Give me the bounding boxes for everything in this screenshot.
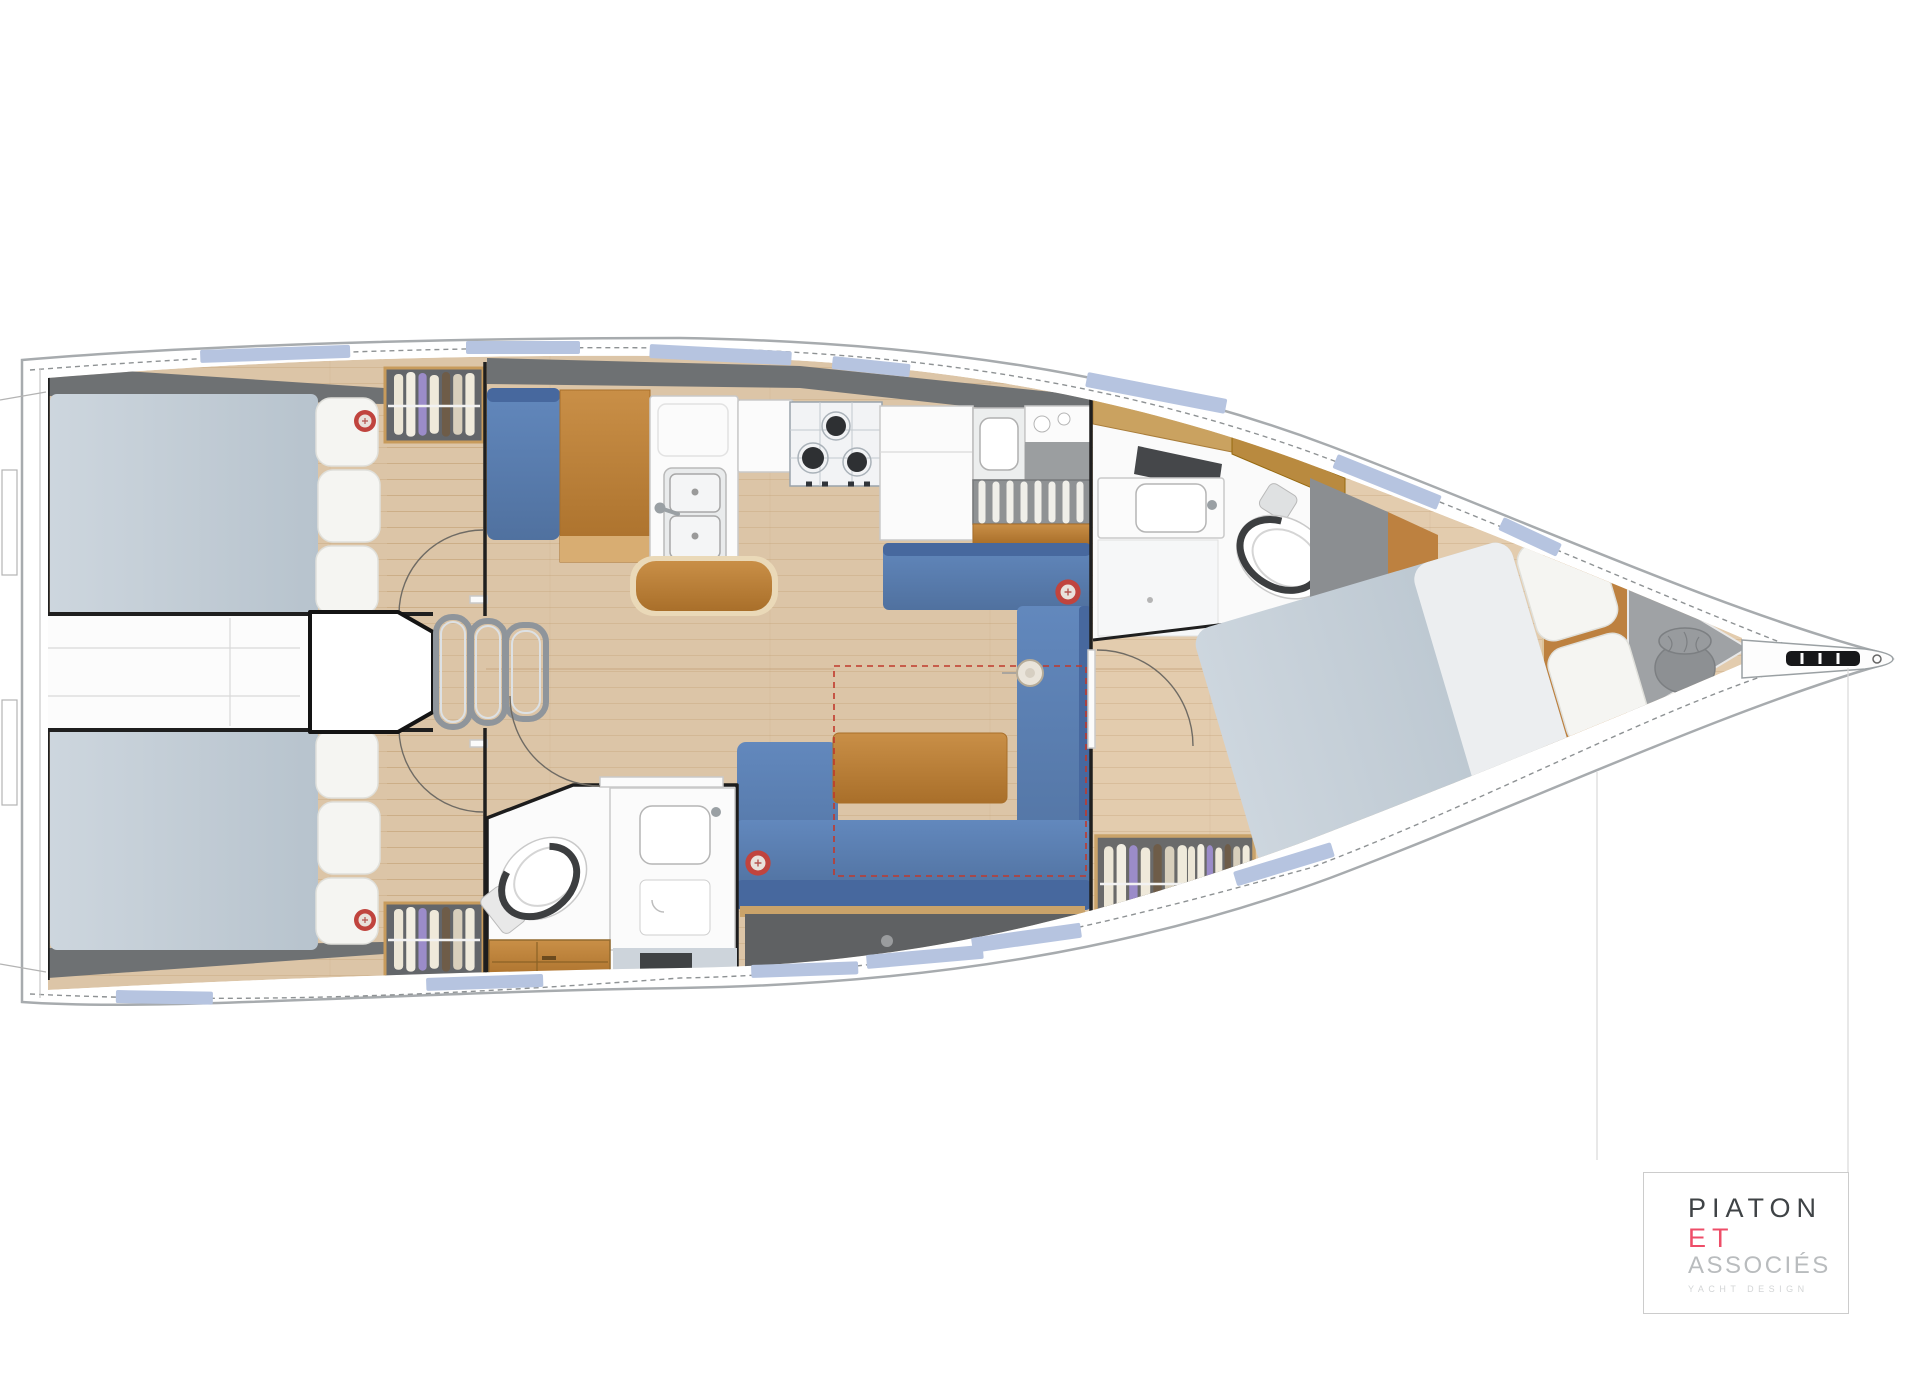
speaker-icon <box>1055 579 1080 604</box>
aft-cabin-starboard <box>48 726 487 985</box>
galley-stove <box>790 402 882 486</box>
window-strip <box>116 990 213 1005</box>
faucet-icon <box>1207 500 1217 510</box>
wardrobe <box>385 368 483 442</box>
aft-cabin-port <box>48 362 487 618</box>
fwd-cabin-door <box>1088 650 1095 748</box>
boat-floorplan <box>0 0 1920 1375</box>
storage-knob-icon <box>881 935 893 947</box>
stove-burner <box>822 412 850 440</box>
stove-burner <box>798 443 828 473</box>
logo-tagline: YACHT DESIGN <box>1688 1284 1848 1294</box>
bow-sprit <box>1742 640 1893 678</box>
porthole-icon <box>354 410 376 432</box>
nav-station <box>487 388 650 562</box>
salon-sofa-back <box>737 880 1091 910</box>
bottle-rack <box>973 480 1091 524</box>
companionway <box>25 612 546 732</box>
nav-seat-back <box>487 388 560 402</box>
galley-shelf <box>973 524 1091 544</box>
fwd-shower <box>1098 540 1218 636</box>
stove-burner <box>843 448 871 476</box>
fwd-head-sink <box>1098 478 1224 538</box>
engine-box <box>310 612 433 732</box>
nav-seat <box>487 388 560 540</box>
cabin-floor <box>387 730 483 900</box>
berth-mattress <box>50 726 318 950</box>
salon-table <box>833 733 1007 803</box>
cabin-floor <box>387 444 483 614</box>
head-sink <box>610 788 735 950</box>
engine-corridor <box>25 616 315 728</box>
galley-sink <box>655 468 727 564</box>
galley-worktop <box>1025 442 1091 480</box>
logo-name-bottom: ASSOCIÉS <box>1688 1253 1848 1280</box>
berth-mattress <box>50 394 318 618</box>
galley-fridge-counter <box>880 406 973 540</box>
porthole-icon <box>354 909 376 931</box>
faucet-icon <box>1034 416 1050 432</box>
logo-card: PIATON ET ASSOCIÉS YACHT DESIGN <box>1643 1172 1849 1314</box>
chart-table-edge <box>560 536 650 562</box>
head-door <box>600 777 723 787</box>
faucet-icon <box>711 807 721 817</box>
logo-name-top: PIATON <box>1688 1193 1848 1223</box>
galley-counter-2 <box>738 400 793 472</box>
galley-island <box>630 556 778 616</box>
logo-name-mid: ET <box>1688 1223 1848 1253</box>
speaker-icon <box>745 850 770 875</box>
wardrobe <box>385 903 483 977</box>
yacht-floorplan-page: PIATON ET ASSOCIÉS YACHT DESIGN <box>0 0 1920 1375</box>
window-strip <box>466 341 580 354</box>
interior <box>25 356 1748 990</box>
